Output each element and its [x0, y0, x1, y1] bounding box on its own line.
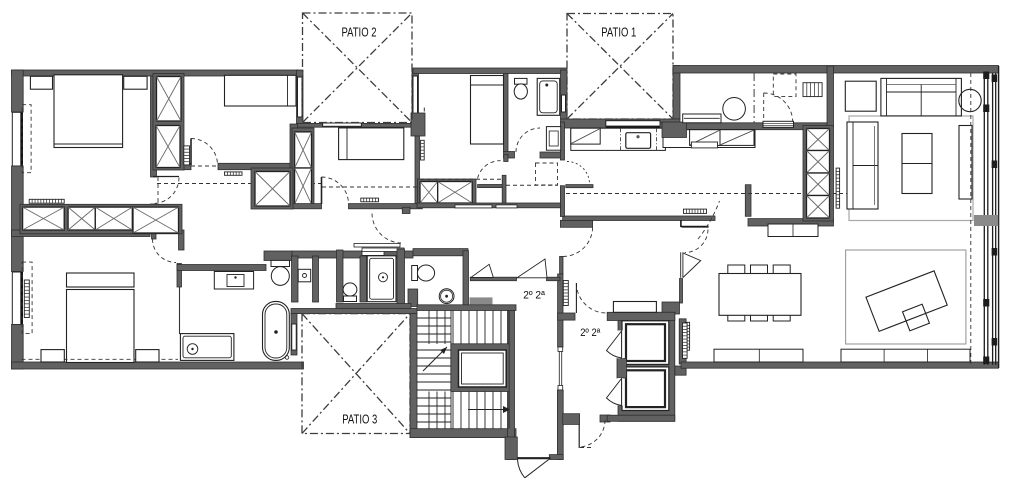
svg-text:2º 2ª: 2º 2ª [523, 289, 545, 301]
svg-text:PATIO 3: PATIO 3 [342, 412, 377, 426]
svg-text:2º 2ª: 2º 2ª [580, 327, 601, 339]
svg-text:PATIO 1: PATIO 1 [601, 25, 636, 39]
svg-text:PATIO 2: PATIO 2 [342, 26, 377, 40]
